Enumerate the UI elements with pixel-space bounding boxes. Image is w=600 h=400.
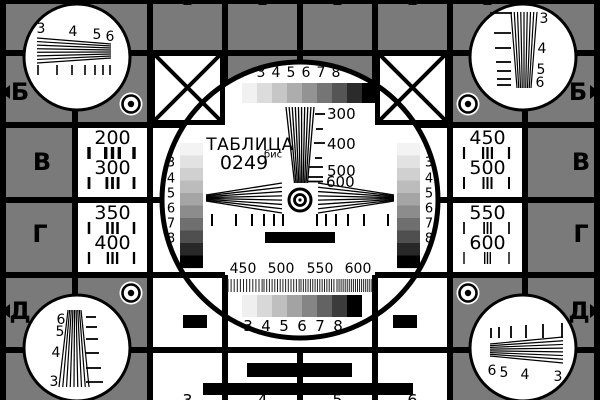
freq-bar-triple: [483, 177, 485, 189]
frequency-value: 400: [94, 232, 130, 254]
frequency-value: 500: [469, 157, 505, 179]
corner-circle-top-right: [470, 4, 576, 110]
grid-line-horizontal: [0, 197, 164, 203]
gray-label-left: 4: [167, 172, 175, 187]
sync-bar-long: [203, 383, 413, 395]
freq-bar-single: [88, 252, 90, 264]
tr-wedge-label: 4: [538, 41, 547, 57]
target-mark-icon: [128, 101, 134, 107]
border-right: [594, 0, 600, 400]
sync-bar-short: [247, 363, 352, 377]
gray-step-right: [397, 218, 420, 231]
gray-step-top: [257, 83, 272, 103]
freq-bar-single: [87, 147, 90, 159]
bl-wedge-label: 4: [52, 345, 61, 361]
frequency-value: 550: [469, 202, 505, 224]
gray-step-top: [347, 83, 362, 103]
gray-label-left: 7: [167, 217, 175, 232]
br-wedge-label: 5: [500, 365, 509, 381]
top-edge-mark: [484, 0, 492, 5]
tl-wedge-label: 6: [106, 29, 115, 45]
gray-label-left: 8: [167, 232, 175, 247]
freq-bar-triple: [111, 252, 113, 264]
border-left: [0, 0, 6, 400]
freq-bar-single: [133, 222, 136, 234]
gray-label-bottom: 3: [243, 317, 253, 335]
fan-scale-label: 300: [327, 105, 356, 123]
gray-label-right: 8: [425, 232, 433, 247]
gray-label-right: 3: [425, 156, 433, 171]
gray-step-left: [180, 168, 203, 181]
br-wedge-label: 6: [488, 363, 497, 379]
bl-wedge-label: 5: [56, 324, 65, 340]
row-letter-right: Б: [569, 78, 587, 106]
bottom-edge-digit: 4: [257, 391, 267, 400]
freq-bar-triple: [484, 252, 485, 264]
freq-bar-single: [133, 252, 135, 264]
row-letter-left: В: [33, 148, 51, 176]
gray-step-bottom: [242, 295, 257, 317]
gray-label-left: 5: [167, 187, 175, 202]
freq-bar-single: [508, 147, 510, 159]
grid-line-vertical: [222, 275, 228, 400]
freq-bar-single: [88, 222, 91, 234]
gray-step-right: [397, 193, 420, 206]
gray-step-right: [397, 156, 420, 169]
freq-bar-single: [508, 222, 510, 234]
grid-line-horizontal: [0, 272, 225, 278]
gray-step-bottom: [347, 295, 362, 317]
gray-step-left: [180, 243, 203, 256]
row-letter-right: Д: [568, 297, 589, 325]
gray-step-left: [180, 156, 203, 169]
gray-step-left: [180, 193, 203, 206]
freq-bar-single: [463, 147, 465, 159]
freq-bar-single: [88, 177, 91, 189]
reference-bar: [265, 232, 335, 243]
gray-step-right: [397, 143, 420, 156]
gray-step-right: [397, 168, 420, 181]
freq-bar-triple: [107, 252, 109, 264]
burst-label: 600: [345, 261, 372, 277]
gray-step-right: [397, 181, 420, 194]
gray-label-top: 4: [272, 65, 281, 81]
target-mark-icon: [465, 101, 471, 107]
grid-line-vertical: [372, 275, 378, 400]
freq-bar-single: [463, 177, 465, 189]
gray-label-top: 3: [257, 65, 266, 81]
row-letter-left: Б: [11, 78, 29, 106]
freq-bar-single: [508, 252, 509, 264]
card-code-suffix: бис: [264, 150, 282, 161]
gray-label-right: 5: [425, 187, 433, 202]
gray-label-bottom: 5: [279, 317, 289, 335]
burst-label: 550: [307, 261, 334, 277]
top-edge-mark: [259, 0, 267, 5]
card-code: 0249: [220, 152, 268, 174]
gray-label-top: 5: [287, 65, 296, 81]
gray-step-left: [180, 231, 203, 244]
freq-bar-triple: [490, 252, 491, 264]
castellation-rect: [183, 315, 207, 328]
grid-line-horizontal: [375, 272, 600, 278]
gray-label-top: 7: [317, 65, 326, 81]
freq-bar-triple: [487, 177, 489, 189]
gray-step-bottom: [272, 295, 287, 317]
row-letter-left: Д: [9, 297, 30, 325]
gray-step-bottom: [332, 295, 347, 317]
gray-label-right: 7: [425, 217, 433, 232]
gray-step-left: [180, 256, 203, 269]
gray-step-right: [397, 206, 420, 219]
tr-wedge-label: 6: [536, 75, 545, 91]
gray-step-top: [332, 83, 347, 103]
bottom-edge-digit: 5: [332, 391, 342, 400]
top-edge-mark: [334, 0, 342, 5]
gray-step-top: [302, 83, 317, 103]
grid-line-horizontal: [436, 197, 600, 203]
frequency-value: 600: [469, 232, 505, 254]
top-edge-mark: [184, 0, 192, 5]
tl-wedge-label: 3: [37, 21, 46, 37]
gray-label-right: 6: [425, 202, 433, 217]
gray-label-top: 8: [332, 65, 341, 81]
gray-label-top: 6: [302, 65, 311, 81]
target-mark-icon: [128, 290, 134, 296]
top-edge-mark: [409, 0, 417, 5]
freq-bar-triple: [116, 252, 118, 264]
freq-bar-single: [133, 177, 136, 189]
gray-step-top: [362, 83, 377, 103]
gray-step-top: [242, 83, 257, 103]
gray-step-top: [287, 83, 302, 103]
br-wedge-label: 3: [554, 369, 563, 385]
frequency-value: 300: [94, 157, 130, 179]
castellation-rect: [393, 315, 417, 328]
freq-bar-triple: [491, 177, 493, 189]
freq-bar-triple: [111, 177, 114, 189]
bottom-edge-digit: 6: [407, 391, 417, 400]
border-top: [0, 0, 600, 4]
row-letter-right: Г: [573, 220, 588, 248]
bl-wedge-label: 3: [50, 374, 59, 390]
target-mark-icon: [465, 290, 471, 296]
freq-bar-triple: [117, 177, 120, 189]
frequency-value: 200: [94, 127, 130, 149]
freq-bar-triple: [487, 252, 488, 264]
gray-label-right: 4: [425, 172, 433, 187]
burst-label: 450: [230, 261, 257, 277]
gray-label-bottom: 7: [315, 317, 325, 335]
gray-step-bottom: [287, 295, 302, 317]
gray-label-bottom: 4: [261, 317, 271, 335]
bl-wedge-line: [74, 310, 75, 387]
gray-step-left: [180, 206, 203, 219]
row-letter-right: В: [572, 148, 590, 176]
row-letter-left: Г: [32, 220, 47, 248]
gray-step-bottom: [257, 295, 272, 317]
gray-step-right: [397, 256, 420, 269]
gray-step-right: [397, 243, 420, 256]
gray-label-bottom: 6: [297, 317, 307, 335]
tl-wedge-label: 5: [93, 27, 102, 43]
gray-step-left: [180, 181, 203, 194]
gray-step-top: [272, 83, 287, 103]
frequency-value: 450: [469, 127, 505, 149]
test-card-screen: 3456345665436543345678ТАБЛИЦА0249бис3004…: [0, 0, 600, 400]
gray-label-left: 3: [167, 156, 175, 171]
gray-step-right: [397, 231, 420, 244]
gray-step-left: [180, 143, 203, 156]
gray-step-top: [317, 83, 332, 103]
freq-bar-triple: [106, 177, 109, 189]
gray-label-left: 6: [167, 202, 175, 217]
gray-step-bottom: [317, 295, 332, 317]
test-card: 3456345665436543345678ТАБЛИЦА0249бис3004…: [0, 0, 600, 400]
tr-wedge-label: 3: [540, 11, 549, 27]
gray-label-bottom: 8: [333, 317, 343, 335]
fan-scale-label: 400: [327, 135, 356, 153]
bullseye-dot: [298, 198, 301, 201]
freq-bar-single: [463, 222, 465, 234]
freq-bar-single: [508, 177, 510, 189]
bottom-edge-digit: 3: [182, 391, 192, 400]
freq-bar-single: [463, 252, 464, 264]
frequency-value: 350: [94, 202, 130, 224]
burst-label: 500: [268, 261, 295, 277]
freq-bar-single: [132, 147, 135, 159]
tl-wedge-label: 4: [69, 24, 78, 40]
br-wedge-label: 4: [521, 367, 530, 383]
gray-step-bottom: [302, 295, 317, 317]
gray-step-left: [180, 218, 203, 231]
